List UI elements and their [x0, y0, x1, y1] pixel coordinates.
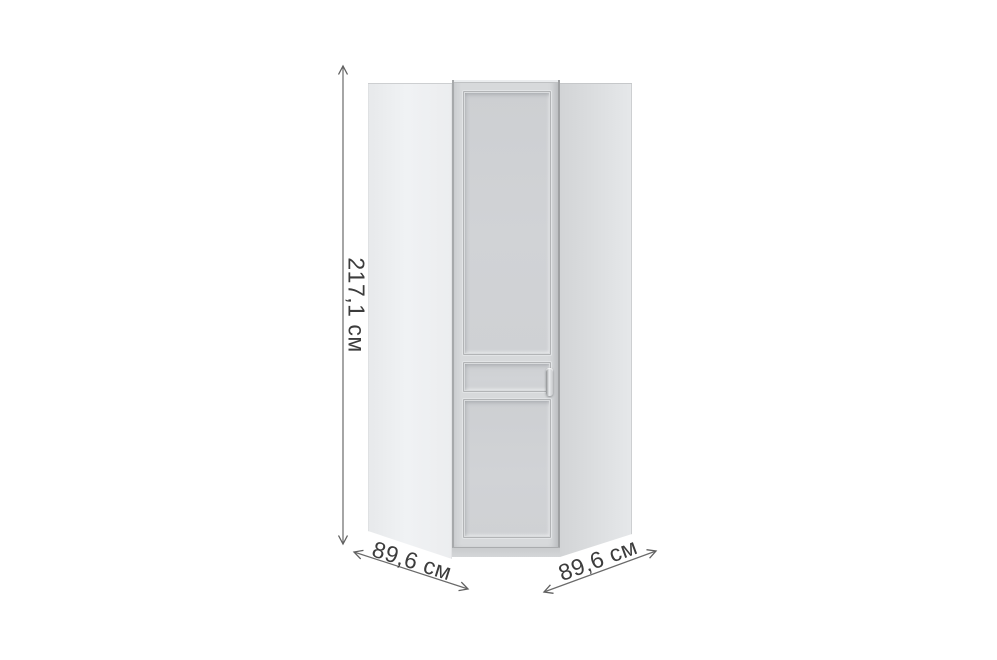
wardrobe-door	[452, 80, 560, 547]
height-dimension-label: 217,1 см	[345, 257, 368, 352]
door-plinth	[452, 547, 560, 557]
corner-wardrobe	[0, 0, 997, 660]
door-middle-panel	[463, 362, 551, 392]
door-upper-panel	[463, 91, 551, 355]
product-dimension-image: 217,1 см 89,6 см 89,6 см	[0, 0, 997, 660]
door-handle	[546, 368, 553, 396]
left-side-panel	[368, 83, 452, 559]
door-lower-panel	[463, 399, 551, 538]
right-side-panel	[560, 83, 632, 557]
